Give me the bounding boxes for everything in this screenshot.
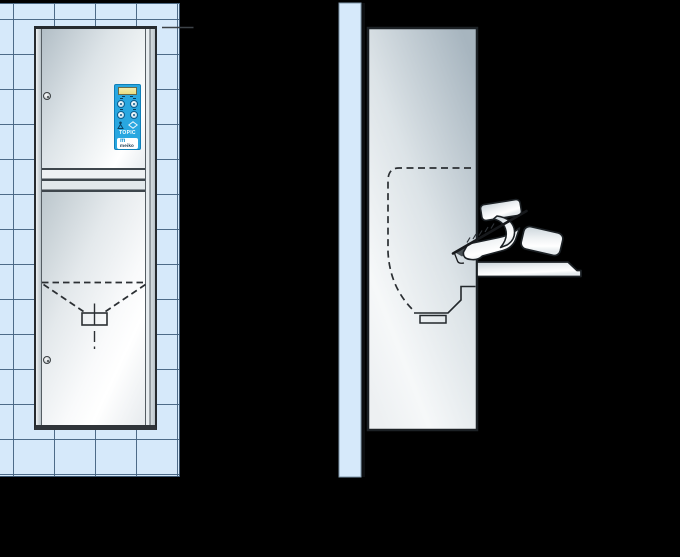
bedpan-washer-diagram: TOPIC m meiko xyxy=(0,0,680,557)
forearm xyxy=(520,225,564,256)
hand xyxy=(480,199,522,221)
program-button-4 xyxy=(130,111,138,119)
washer-side-body xyxy=(368,28,477,430)
display-indicators xyxy=(122,96,133,97)
wall-surface-line xyxy=(362,3,366,477)
bedpan-rim-line xyxy=(453,211,527,254)
side-view xyxy=(339,3,581,477)
display-screen xyxy=(118,87,137,95)
chamber-outline-dashed xyxy=(388,168,471,311)
fingers xyxy=(494,216,515,248)
grip-ticks xyxy=(467,224,494,243)
meiko-logo: m meiko xyxy=(117,138,138,150)
brand-label: TOPIC xyxy=(119,131,136,136)
program-button-3 xyxy=(117,111,125,119)
lock-icon xyxy=(43,356,51,364)
program-button-1 xyxy=(117,100,125,108)
chute-lip xyxy=(454,252,464,263)
drain-profile xyxy=(414,287,476,314)
program-button-2 xyxy=(130,100,138,108)
user-icon xyxy=(117,121,124,129)
control-panel: TOPIC m meiko xyxy=(114,84,141,150)
lock-icon xyxy=(43,92,51,100)
cabinet-right-rail xyxy=(145,29,155,425)
wall-section xyxy=(339,3,361,477)
rim-shadow xyxy=(456,241,476,257)
open-door-tray xyxy=(477,262,581,277)
program-buttons xyxy=(117,98,139,119)
logo-word: meiko xyxy=(120,144,138,149)
lower-door xyxy=(42,192,145,425)
diamond-icon xyxy=(128,121,138,129)
divider-panel xyxy=(42,168,145,192)
bedpan-bowl xyxy=(463,228,519,260)
drain-box xyxy=(420,316,446,324)
